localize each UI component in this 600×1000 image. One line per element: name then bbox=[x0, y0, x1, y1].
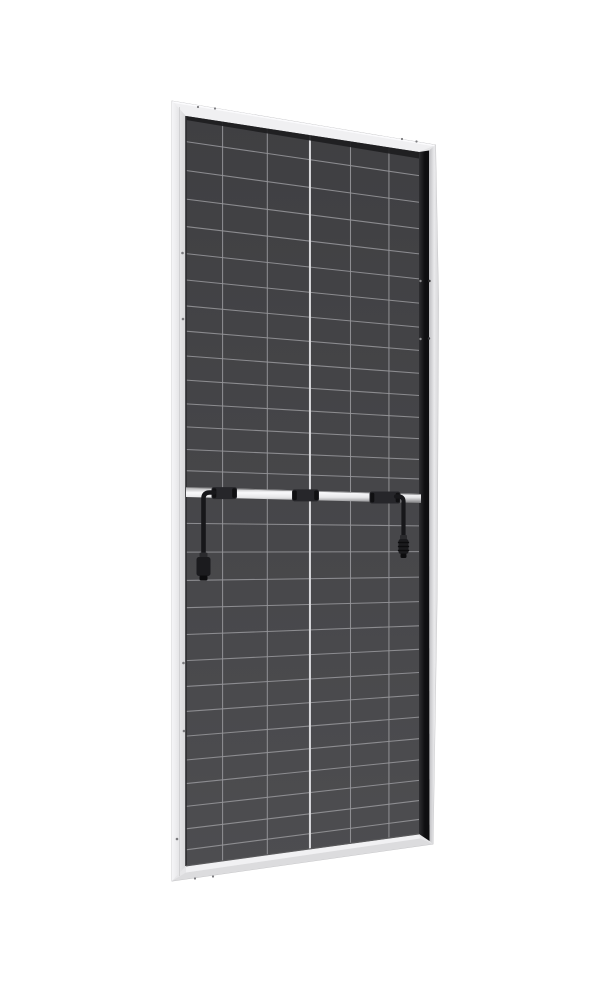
panel-svg bbox=[0, 0, 600, 1000]
frame-hole bbox=[428, 337, 430, 339]
frame-hole bbox=[428, 280, 430, 282]
frame-hole bbox=[182, 662, 185, 665]
junction-box-gland bbox=[370, 493, 374, 503]
frame-hole bbox=[214, 107, 216, 109]
junction-box-gland bbox=[232, 488, 236, 498]
frame-hole bbox=[183, 730, 186, 733]
frame-hole bbox=[176, 838, 179, 841]
mc4-connector-collar bbox=[200, 553, 208, 558]
frame-hole bbox=[197, 106, 199, 108]
frame-hole bbox=[194, 877, 196, 879]
frame-hole bbox=[419, 338, 421, 340]
solar-panel-render bbox=[0, 0, 600, 1000]
frame-hole bbox=[212, 875, 214, 877]
frame-left-face bbox=[172, 101, 186, 881]
frame-hole bbox=[181, 252, 184, 255]
mc4-connector-tip bbox=[200, 576, 208, 581]
mc4-connector-body bbox=[197, 557, 211, 576]
frame-hole bbox=[182, 318, 185, 321]
mc4-connector-tip bbox=[401, 554, 407, 559]
junction-box-gland bbox=[314, 491, 318, 501]
mc4-connector-collar bbox=[400, 535, 407, 540]
frame-hole bbox=[419, 280, 421, 282]
frame-hole bbox=[415, 140, 417, 142]
junction-box-gland bbox=[293, 491, 297, 501]
frame-hole bbox=[401, 138, 403, 140]
